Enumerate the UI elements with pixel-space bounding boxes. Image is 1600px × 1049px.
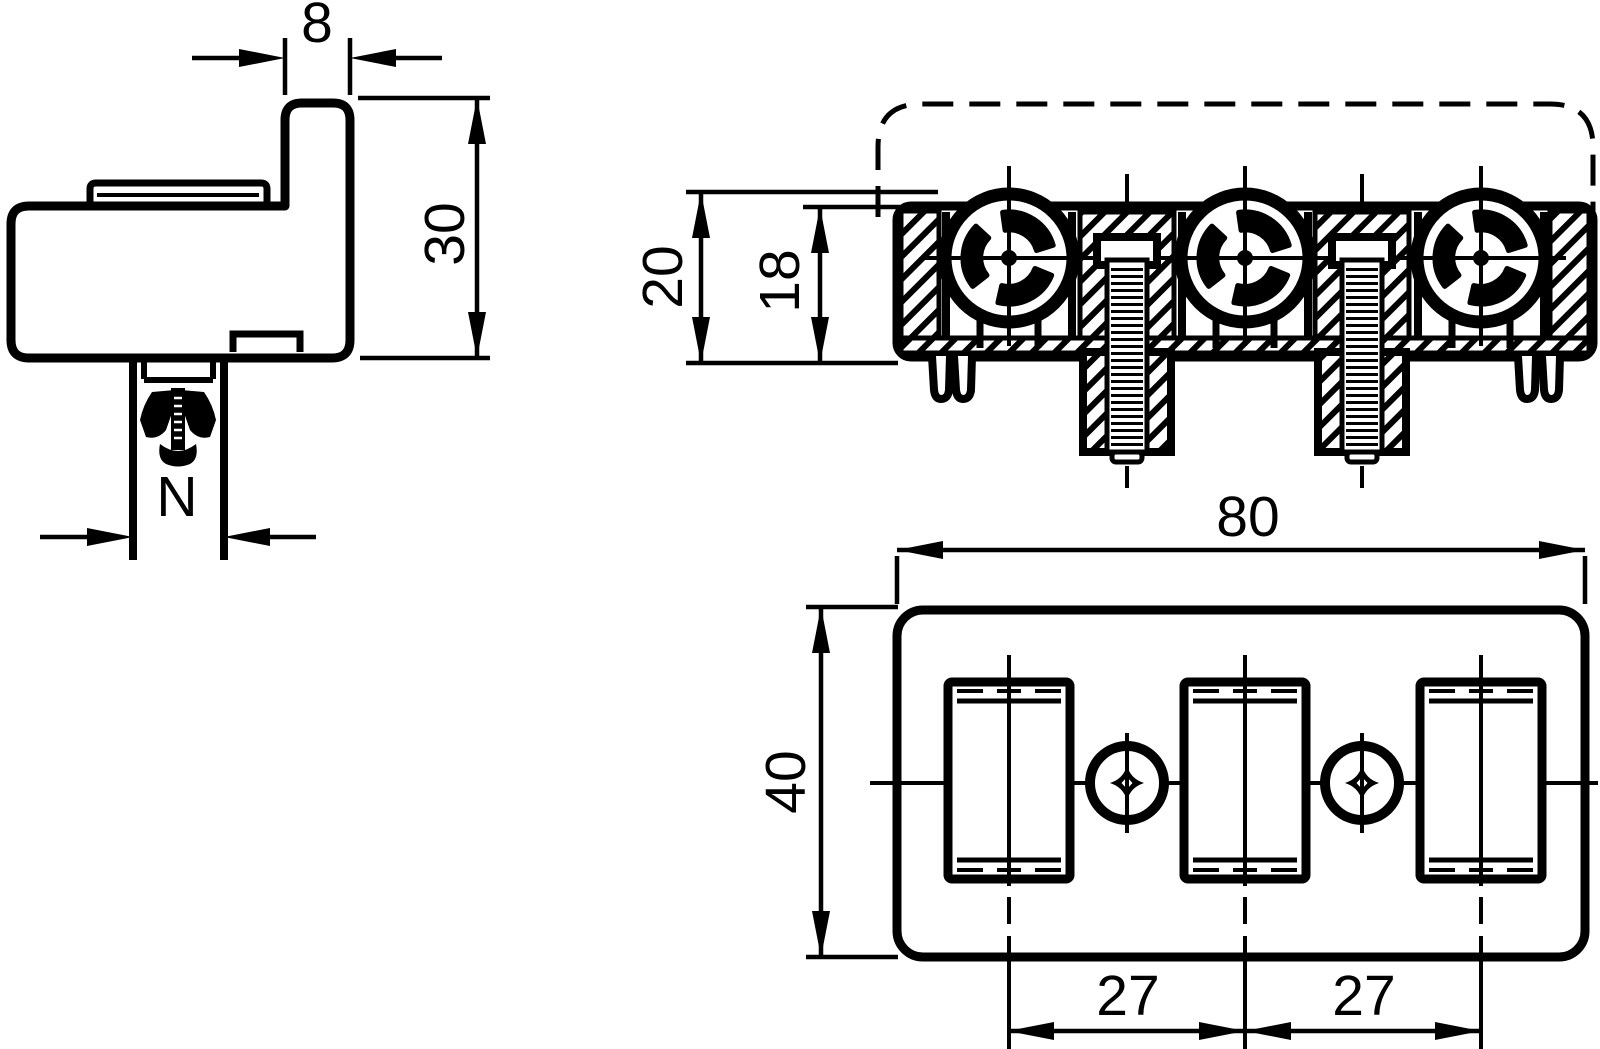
dim-label-body-height: 30 [413,202,477,265]
front-section-view: 20 18 [631,104,1593,488]
technical-drawing: 8 30 N [0,0,1600,1049]
dim-8: 8 [192,0,442,95]
dim-label-section-outer: 20 [631,245,695,308]
dim-label-section-inner: 18 [748,249,812,312]
dim-N: N [40,465,316,546]
dim-label-pitch-right: 27 [1332,964,1395,1028]
side-view-bottom-notch [233,334,300,352]
side-view: 8 30 N [11,0,490,560]
side-view-body [11,103,350,358]
dim-80: 80 [897,485,1585,604]
threaded-stud-left [1097,237,1157,488]
top-view: 80 [754,485,1598,1049]
dim-label-tab-width: 8 [301,0,333,55]
dim-18: 18 [748,207,900,363]
dim-label-overall-depth: 40 [754,750,818,813]
mounting-feet [932,356,1560,399]
drawing-sheet: 8 30 N [0,0,1600,1049]
dim-label-overall-width: 80 [1216,485,1279,549]
dim-label-pitch-left: 27 [1096,964,1159,1028]
dim-label-fastener-width: N [156,465,197,529]
threaded-stud-right [1332,237,1392,488]
snap-rivet-barb [140,388,216,467]
dim-30: 30 [358,98,490,358]
snap-rivet [133,358,224,560]
